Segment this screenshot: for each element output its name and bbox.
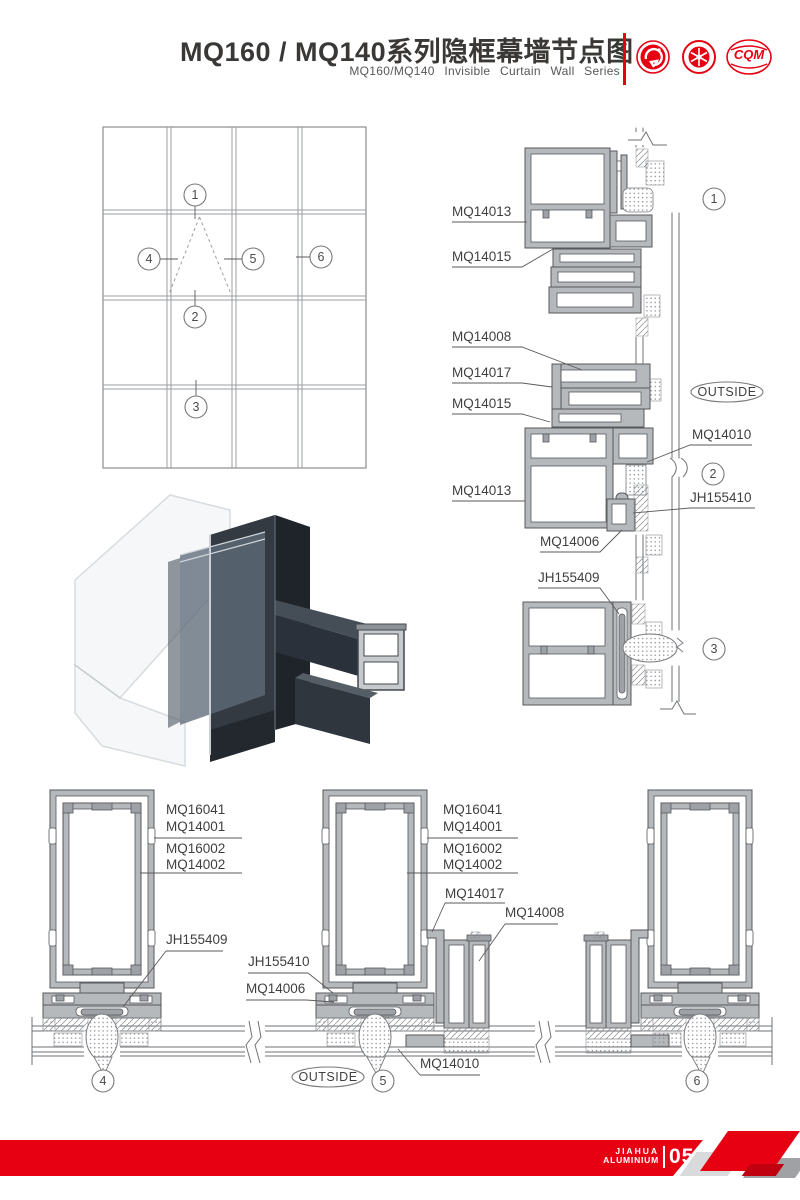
part-label: MQ14015 <box>452 249 511 265</box>
part-label: JH155410 <box>690 490 752 506</box>
elevation-callout-1: 1 <box>187 187 203 203</box>
outside-label: OUTSIDE <box>693 385 761 399</box>
catalog-page: MQ160 / MQ140系列隐框幕墙节点图 MQ160/MQ140 Invis… <box>0 0 800 1200</box>
emblem-cert-icon <box>683 41 715 73</box>
elevation-callout-4: 4 <box>141 251 157 267</box>
elevation-callout-5: 5 <box>245 251 261 267</box>
part-label: MQ16002 <box>166 841 225 857</box>
section-callout-6: 6 <box>689 1073 705 1089</box>
footer-brand-line2: ALUMINIUM <box>540 1156 659 1165</box>
section-callout-2: 2 <box>705 466 721 482</box>
gb-cert-icon <box>637 41 669 73</box>
part-label: MQ16002 <box>443 841 502 857</box>
section-callout-5: 5 <box>375 1073 391 1089</box>
elevation-callout-6: 6 <box>313 249 329 265</box>
cqm-logo-text: CQM <box>728 47 770 62</box>
part-label: MQ14006 <box>540 534 599 550</box>
part-label: JH155409 <box>538 570 600 586</box>
anchor-bolt <box>623 634 683 662</box>
part-label: MQ14013 <box>452 483 511 499</box>
part-label: MQ14002 <box>166 857 225 873</box>
elevation-callout-2: 2 <box>187 309 203 325</box>
part-label: JH155410 <box>248 954 310 970</box>
part-label: JH155409 <box>166 932 228 948</box>
section-callout-1: 1 <box>706 191 722 207</box>
part-label: MQ14002 <box>443 857 502 873</box>
part-label: MQ14017 <box>445 886 504 902</box>
part-label: MQ16041 <box>166 802 225 818</box>
part-label: MQ14015 <box>452 396 511 412</box>
part-label: MQ14010 <box>692 427 751 443</box>
part-label: MQ14001 <box>443 819 502 835</box>
horizontal-section-details <box>20 785 790 1105</box>
header-divider <box>623 33 626 85</box>
certification-logos: CQM <box>630 33 795 83</box>
elevation-grid-drawing <box>100 122 370 474</box>
part-label: MQ16041 <box>443 802 502 818</box>
section-callout-4: 4 <box>95 1073 111 1089</box>
part-label: MQ14001 <box>166 819 225 835</box>
part-label: MQ14008 <box>505 905 564 921</box>
footer-brand: JIAHUA ALUMINIUM <box>540 1147 659 1165</box>
section-callout-3: 3 <box>706 641 722 657</box>
page-subtitle: MQ160/MQ140 Invisible Curtain Wall Serie… <box>180 64 620 78</box>
part-label: MQ14008 <box>452 329 511 345</box>
part-label: MQ14010 <box>420 1056 479 1072</box>
part-label: MQ14013 <box>452 204 511 220</box>
footer-separator <box>663 1146 665 1168</box>
part-label: MQ14006 <box>246 981 305 997</box>
elevation-callout-3: 3 <box>188 399 204 415</box>
corner-assembly-3d-render <box>60 480 420 770</box>
outside-label: OUTSIDE <box>293 1070 363 1084</box>
part-label: MQ14017 <box>452 365 511 381</box>
